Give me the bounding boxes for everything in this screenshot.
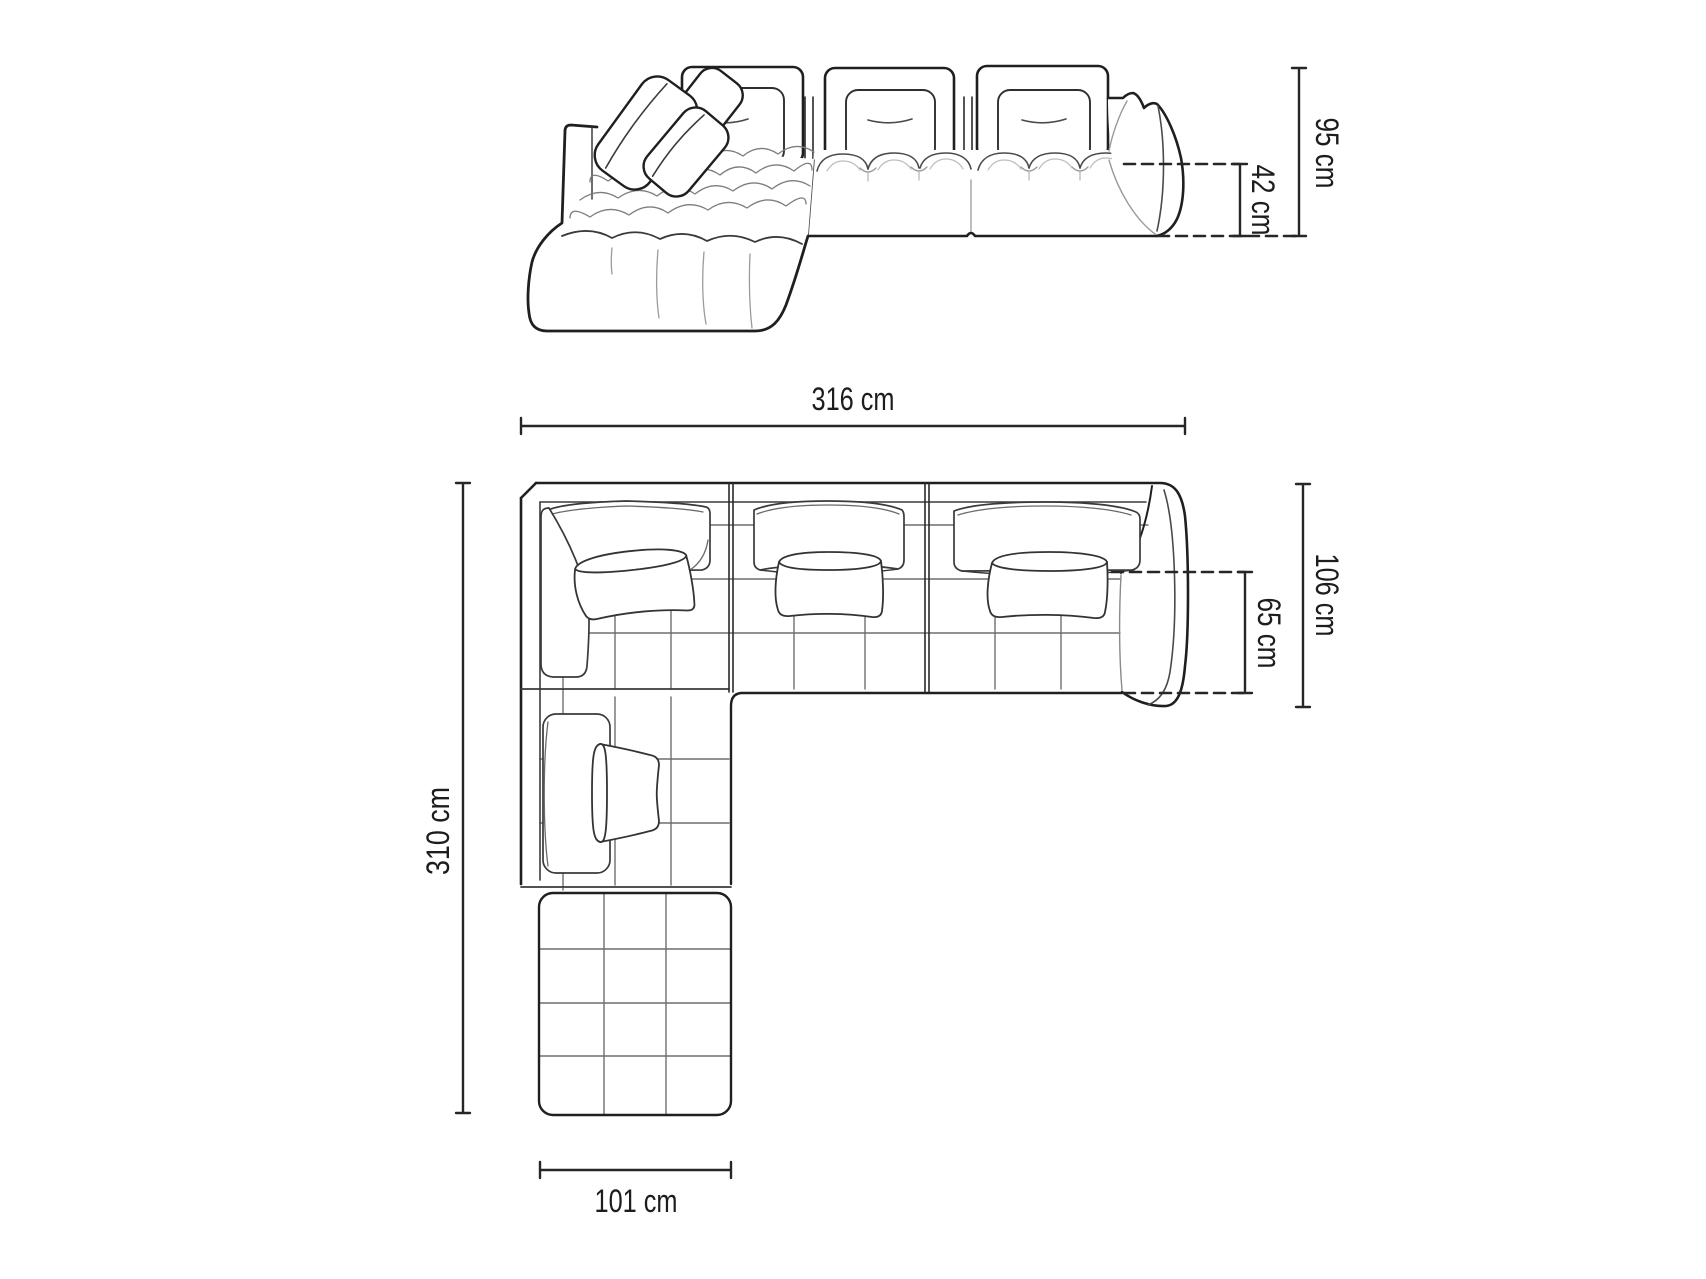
svg-text:106 cm: 106 cm <box>1309 554 1345 637</box>
svg-text:65 cm: 65 cm <box>1251 598 1287 669</box>
svg-text:316 cm: 316 cm <box>812 381 895 417</box>
svg-text:310 cm: 310 cm <box>420 787 456 875</box>
svg-text:101 cm: 101 cm <box>595 1183 678 1219</box>
svg-text:42 cm: 42 cm <box>1245 165 1281 236</box>
svg-text:95 cm: 95 cm <box>1309 118 1345 189</box>
